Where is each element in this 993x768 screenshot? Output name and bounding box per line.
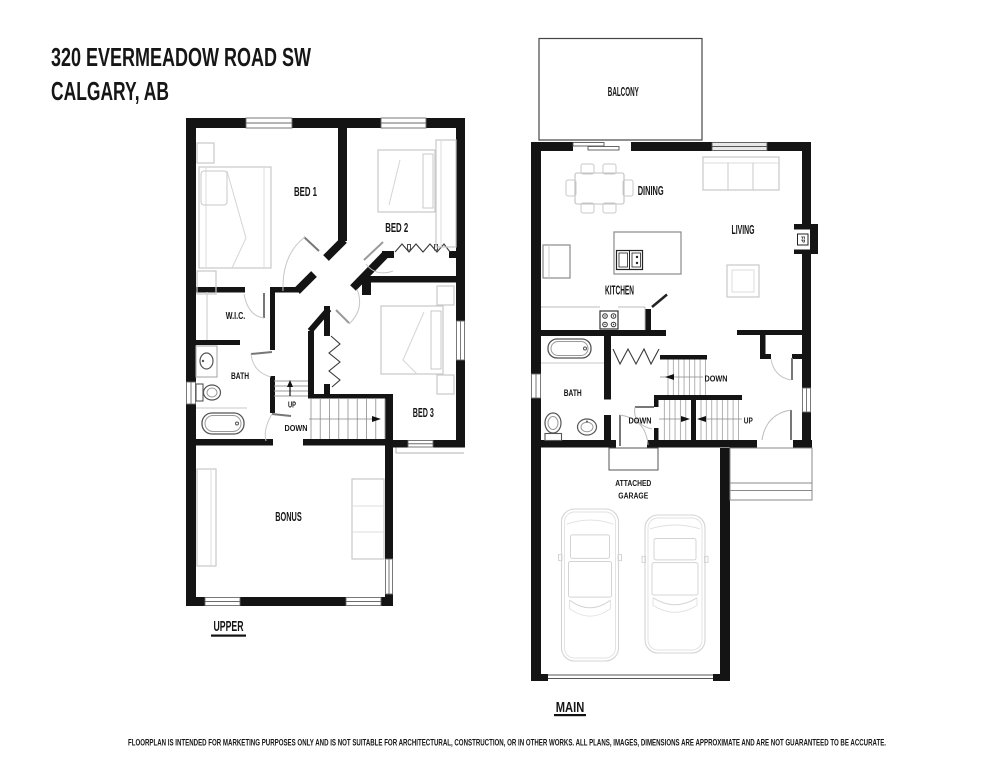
svg-text:BATH: BATH — [564, 388, 582, 398]
svg-text:BED 2: BED 2 — [385, 220, 408, 235]
svg-text:BALCONY: BALCONY — [608, 84, 639, 99]
svg-text:BONUS: BONUS — [275, 509, 302, 524]
svg-text:UP: UP — [744, 416, 753, 426]
svg-text:UP: UP — [288, 400, 296, 410]
svg-text:BATH: BATH — [231, 371, 249, 381]
svg-text:CALGARY, AB: CALGARY, AB — [51, 76, 169, 106]
svg-text:W.I.C.: W.I.C. — [226, 311, 246, 322]
svg-text:FLOORPLAN IS INTENDED FOR MARK: FLOORPLAN IS INTENDED FOR MARKETING PURP… — [128, 738, 886, 748]
svg-text:DOWN: DOWN — [629, 416, 652, 426]
svg-text:DINING: DINING — [638, 183, 664, 198]
svg-text:DOWN: DOWN — [705, 374, 728, 384]
svg-text:FP: FP — [799, 236, 805, 243]
svg-text:BED 1: BED 1 — [294, 184, 317, 199]
svg-text:LIVING: LIVING — [732, 222, 755, 237]
svg-text:KITCHEN: KITCHEN — [605, 283, 634, 298]
svg-text:DOWN: DOWN — [285, 423, 308, 433]
svg-text:BED 3: BED 3 — [413, 405, 434, 420]
svg-text:UPPER: UPPER — [214, 619, 244, 635]
svg-text:ATTACHED: ATTACHED — [615, 479, 651, 488]
svg-text:320 EVERMEADOW ROAD SW: 320 EVERMEADOW ROAD SW — [51, 42, 311, 72]
svg-text:GARAGE: GARAGE — [618, 492, 649, 501]
svg-text:MAIN: MAIN — [556, 700, 585, 716]
